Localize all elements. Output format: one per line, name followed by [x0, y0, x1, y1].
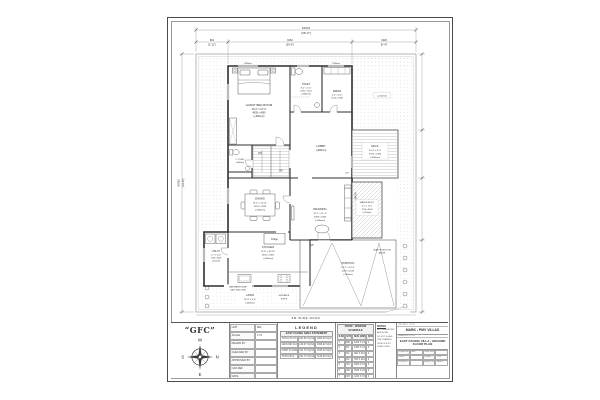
stairs-icon — [253, 146, 289, 177]
projection-note-1: SLAB PROJECTION — [373, 249, 391, 252]
kitchen-level: (+900mm) — [263, 258, 273, 260]
entrance-note-1: ENTRANCE — [279, 294, 290, 297]
legend-section: LEGEND EAST FACING AREA STATEMENT TOTAL … — [277, 323, 335, 378]
fridge-label: Fridge — [271, 238, 278, 241]
wardrobe-icon — [230, 118, 237, 144]
wc-icon — [292, 68, 303, 75]
compass-rose-icon: W S N E — [178, 335, 222, 377]
table-cell — [255, 349, 277, 357]
dim-left-ft: [34'-9"] — [181, 178, 185, 187]
c-toilet-level: (+880mm) — [236, 162, 245, 164]
table-cell — [255, 365, 277, 373]
wash-label: WASH — [355, 192, 358, 199]
portico-level: (-150mm) — [343, 274, 353, 276]
dress-size-mm: 1524 x 2438 — [331, 98, 343, 100]
table-cell: SHEET NO — [423, 360, 436, 365]
deck-up-label: UP — [345, 173, 349, 175]
table-cell: PROJECT NO — [397, 360, 410, 365]
kitchen-label: KITCHEN — [262, 245, 274, 249]
table-cell — [410, 360, 423, 365]
table-cell: SCALE — [230, 332, 255, 340]
utility-size-mm: 1706 x 3403 — [211, 258, 221, 260]
dining-size-mm: 4424 x 3328 — [254, 206, 267, 208]
area-statement-table: TOTAL PLOT AREA222.96 SQ.M(s)2400.00 SQ.… — [280, 336, 333, 359]
window-width-1500: 1500mm — [332, 63, 340, 65]
table-cell: GF-01 — [435, 360, 448, 365]
portico-size-mm: 5057 x 4134 — [342, 271, 355, 273]
kitchen-size-ft: 11'-8" x 10'-10" — [261, 251, 276, 253]
water-body-size-mm: 1574 x 3406 — [361, 209, 373, 211]
project-title-value: MARK - PMV VILLAS — [397, 327, 448, 335]
area-statement: EAST FACING AREA STATEMENT TOTAL PLOT AR… — [280, 331, 333, 359]
portico-label: PORTICO — [342, 261, 356, 265]
table-cell: CAD REF — [230, 365, 255, 373]
tv-unit-icon — [292, 206, 295, 220]
drawing-size-ft: 10'-1" x 11'-4" — [313, 213, 327, 215]
table-cell: 1200 X 1500 — [352, 374, 366, 378]
dim-seg2-ft: [26'-9"] — [286, 43, 294, 46]
toilet-label: TOILET — [302, 83, 311, 86]
drawing-title-value: EAST FACING VILLA - GROUND FLOOR PLAN — [397, 338, 448, 350]
dress-size-ft: 5'-0" x 8'-0" — [332, 95, 343, 97]
table-cell: APPROVED BY — [230, 357, 255, 365]
lobby-level: (+900mm) — [316, 150, 327, 152]
notes-title: NOTES — [377, 325, 395, 328]
c-toilet-label: C.TOILET — [236, 159, 246, 161]
drawing-level: (+900mm) — [315, 220, 325, 222]
stairs-dn-label: DN — [258, 152, 262, 155]
table-row: PROJECT NOSHEET NOGF-01 — [397, 360, 448, 365]
lobby-label: LOBBY — [316, 144, 326, 148]
window-width-1800: 1800mm — [244, 63, 252, 65]
utility-level: (-150mm) — [212, 261, 221, 263]
table-row: APPROVED BY — [230, 357, 277, 365]
guest-bed-room-label: GUEST BED ROOM — [246, 103, 273, 107]
note-line: ALL DIMENSIONS ARE IN MM — [377, 329, 395, 335]
table-row: UNITMM — [230, 324, 277, 332]
utility-size-ft: 5'-7" x 11'-2" — [211, 255, 222, 257]
table-row: CAD REF — [230, 365, 277, 373]
table-row: 7W31200 X 15002 — [337, 374, 374, 378]
drawing-size-mm: 3029 x 3446 — [314, 217, 327, 219]
table-cell: TOTAL BUA — [280, 354, 298, 360]
bed-icon — [233, 68, 276, 94]
table-cell: UNIT — [230, 324, 255, 332]
drawing-info-section: UNITMMSCALE1:75DRAWN BYCHECKED BYAPPROVE… — [229, 323, 277, 378]
schedule-table: S.NOSYMSIZE (MM)NOS1MD1200 X 210012D1105… — [337, 334, 374, 378]
table-cell: W3 — [345, 374, 353, 378]
utility-label: UTILITY — [212, 251, 221, 253]
schedule-title: DOOR - WINDOW SCHEDULE — [337, 324, 374, 334]
portico-size-ft: 16'-7" x 13'-6" — [341, 267, 355, 269]
lawn-size-ft: 18'-4" x 9'-6" — [244, 299, 256, 301]
project-fields-table: DRAWN BYGFCCHECKED BYDATESCALE1:75PROJEC… — [397, 350, 448, 366]
washbasin-icon — [315, 103, 320, 108]
dim-seg3-mm: 1929 — [381, 39, 387, 42]
dining-level: (+900mm) — [255, 210, 265, 212]
logo-section: “GFC” W S N E — [171, 323, 229, 378]
drawing-label: DRAWING — [313, 207, 326, 211]
portico-up-label: UP — [310, 244, 314, 247]
deck-size-ft: 12'-4" x 8'-0" — [369, 150, 381, 152]
table-cell: DRAWN BY — [230, 340, 255, 348]
entrance-note-2: STEPS — [281, 298, 288, 300]
dress-wardrobe-icon — [324, 68, 350, 75]
table-cell: 2 — [366, 374, 374, 378]
note-line: LEVELS W.R.T ROAD LEVEL — [377, 343, 395, 349]
water-body-size-ft: 5'-2" x 11'-2" — [361, 206, 372, 208]
notes-section: NOTES ALL DIMENSIONS ARE IN MM DO NOT SC… — [375, 323, 396, 378]
dining-label: DINING — [255, 197, 265, 201]
dim-top-total-ft: [36'-0"] — [301, 31, 310, 35]
toilet-level: (+880mm) — [301, 94, 311, 96]
road-label: 9M WIDE ROAD — [292, 316, 321, 320]
table-cell — [255, 340, 277, 348]
table-row: CHECKED BY — [230, 349, 277, 357]
rainwater-note-1: RAIN WATER SUMP — [229, 285, 247, 288]
table-cell: MM — [255, 324, 277, 332]
hob-icon — [278, 275, 290, 283]
table-cell — [255, 357, 277, 365]
coffee-table-icon — [315, 225, 329, 233]
dim-seg2-mm: 8152 — [287, 39, 293, 42]
toilet-size-mm: 2490 x 1524 — [300, 91, 312, 93]
sink-icon — [238, 275, 251, 283]
table-cell: CHECKED BY — [230, 349, 255, 357]
kitchen-size-mm: 3545 x 3303 — [262, 255, 275, 257]
table-row: DRAWN BY — [230, 340, 277, 348]
compass-bottom-label: E — [199, 372, 202, 377]
dim-seg1-ft: [2'-11"] — [208, 43, 216, 46]
schedule-section: DOOR - WINDOW SCHEDULE S.NOSYMSIZE (MM)N… — [335, 323, 375, 378]
right-lawn-level: (+150mm) — [377, 96, 387, 98]
table-cell: 1:75 — [255, 332, 277, 340]
compass-left-label: S — [181, 354, 184, 359]
title-block: “GFC” W S N E UNITMMSCALE1:75DRAWN BYCHE… — [171, 322, 448, 378]
dining-size-ft: 14'-6" x 10'-11" — [253, 203, 268, 205]
dim-top-total-mm: 10972 — [302, 26, 311, 30]
deck-size-mm: 3743 x 2436 — [369, 153, 382, 155]
legend-title: LEGEND — [278, 325, 335, 330]
sofa-icon — [345, 185, 352, 221]
toilet-size-ft: 8'-2" x 5'-0" — [301, 88, 312, 90]
stairs-up-label: UP — [279, 170, 283, 173]
lawn-label: LAWN — [246, 293, 254, 297]
project-section: PROJECT TITLE MARK - PMV VILLAS DRAWING … — [396, 323, 448, 378]
compass-right-label: N — [216, 354, 219, 359]
water-body-label: WATER BODY — [360, 201, 375, 204]
dress-label: DRESS — [333, 90, 342, 93]
guest-bed-room-level: (+900mm) — [254, 115, 265, 118]
note-line: DO NOT SCALE THE DRAWING — [377, 336, 395, 342]
dim-seg3-ft: [6'-4"] — [381, 43, 388, 46]
deck-level: (+900mm) — [370, 157, 380, 159]
table-cell: 291.72 SQ.M(s) — [298, 354, 316, 360]
company-logo: “GFC” — [171, 325, 229, 335]
table-cell: 7 — [337, 374, 345, 378]
table-row: TOTAL BUA291.72 SQ.M(s)3140.05 SQ.FT — [280, 354, 333, 360]
compass-top-label: W — [198, 338, 203, 343]
table-row: DATE — [230, 373, 277, 378]
deck-label: DECK — [371, 144, 378, 148]
water-body-level: (-450mm) — [363, 212, 372, 214]
table-cell — [255, 373, 277, 378]
rainwater-note-2: (CAP: 8000 LTRS) — [230, 288, 246, 291]
table-cell: DATE — [230, 373, 255, 378]
dim-seg1-mm: 891 — [210, 39, 215, 42]
table-cell: 3140.05 SQ.FT — [315, 354, 333, 360]
lawn-level: (-450mm) — [245, 303, 255, 305]
projection-note-2: ABOVE — [379, 252, 386, 255]
table-row: SCALE1:75 — [230, 332, 277, 340]
dim-left-mm: 10592 — [177, 179, 181, 187]
drawing-canvas: GUEST BED ROOM 16'-2" x 13'-4" 4935 x 40… — [0, 0, 600, 400]
